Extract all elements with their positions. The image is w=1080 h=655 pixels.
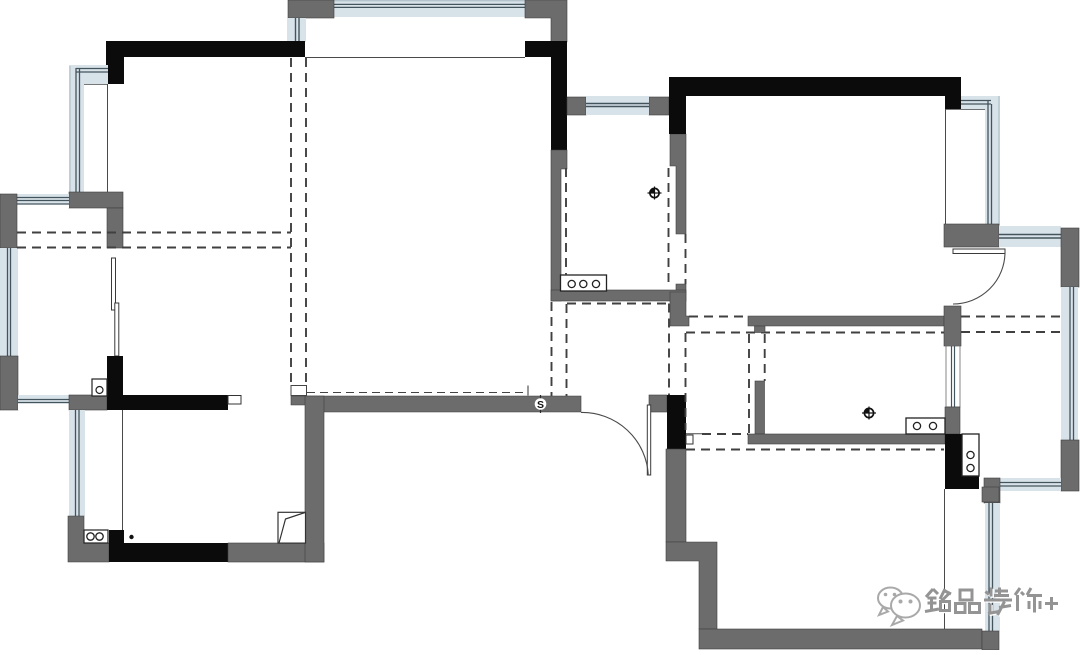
svg-text:S: S — [537, 399, 544, 411]
